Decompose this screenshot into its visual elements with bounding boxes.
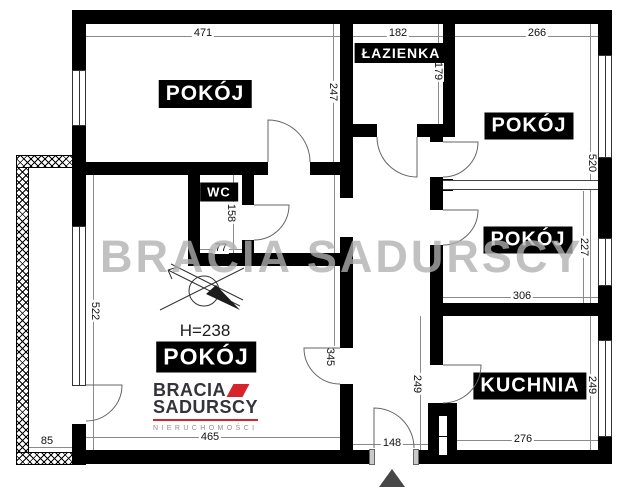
watermark: BRACIA SADURSCY xyxy=(100,231,583,283)
door-arc xyxy=(443,142,478,177)
door-arc xyxy=(86,385,122,421)
door-arc xyxy=(374,408,414,448)
floor-plan: POKÓJ ŁAZIENKA POKÓJ POKÓJ WC POKÓJ KUCH… xyxy=(0,0,640,500)
door-arc xyxy=(268,120,310,162)
door-arc xyxy=(443,365,481,403)
door-arc xyxy=(304,348,340,384)
door-arc xyxy=(377,137,417,177)
